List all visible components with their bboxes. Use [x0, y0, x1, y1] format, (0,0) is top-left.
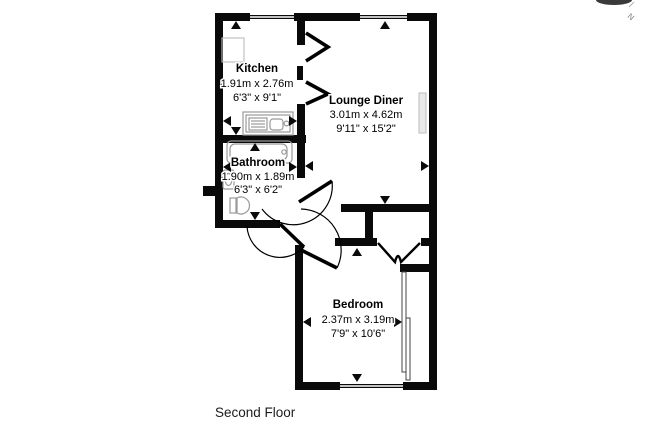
- bedroom-dim-metric: 2.37m x 3.19m: [322, 314, 395, 326]
- lounge-arrow-left: [305, 161, 313, 171]
- kitchen-dim-metric: 1.91m x 2.76m: [221, 78, 294, 90]
- kitchen-door-leaf-lower: [306, 82, 328, 104]
- lounge-label: Lounge Diner: [329, 95, 404, 107]
- lounge-dim-imperial: 9'11" x 15'2": [336, 123, 396, 135]
- lounge-arrow-down: [380, 196, 390, 204]
- bedroom-label: Bedroom: [333, 299, 383, 311]
- bathroom-label: Bathroom: [231, 157, 285, 169]
- kitchen-dim-imperial: 6'3" x 9'1": [233, 92, 281, 104]
- bedroom-arrow-down: [352, 374, 362, 382]
- bedroom-dim-imperial: 7'9" x 10'6": [331, 328, 385, 340]
- toilet: [230, 197, 249, 214]
- kitchen-arrow-left: [223, 116, 231, 126]
- floor-title: Second Floor: [215, 405, 296, 420]
- compass-needle: [629, 2, 634, 7]
- wall-kitchen-lounge-c: [297, 104, 305, 135]
- floorplan-drawing: Kitchen 1.91m x 2.76m 6'3" x 9'1" Lounge…: [0, 0, 650, 433]
- wall-wardrobe-top: [400, 264, 429, 272]
- wall-bifold-post: [421, 238, 429, 246]
- radiator: [419, 93, 426, 133]
- bifold-door: [378, 243, 420, 262]
- floorplan-page: Kitchen 1.91m x 2.76m 6'3" x 9'1" Lounge…: [0, 0, 650, 433]
- wall-kitchen-lounge-a: [297, 13, 305, 45]
- kitchen-label: Kitchen: [236, 63, 278, 75]
- kitchen-sink: [243, 112, 293, 135]
- bathroom-arrow-down: [250, 212, 260, 220]
- bathroom-dim-imperial: 6'3" x 6'2": [234, 184, 282, 196]
- wall-right: [429, 13, 437, 390]
- bedroom-arrow-right: [394, 317, 402, 327]
- wall-bathroom-right: [297, 143, 305, 178]
- compass-base: [596, 0, 632, 5]
- kitchen-door-leaf-upper: [306, 33, 328, 61]
- compass-north-icon: N: [626, 12, 636, 23]
- compass: N: [596, 0, 636, 22]
- wall-kitchen-lounge-b: [297, 66, 303, 80]
- wardrobe-sliding-doors: [402, 272, 410, 380]
- kitchen-opening-doors: [306, 33, 328, 104]
- kitchen-arrow-up: [231, 21, 241, 29]
- wall-landing-stub: [203, 186, 215, 196]
- wall-bedroom-left: [295, 245, 303, 390]
- kitchen-counter: [222, 38, 244, 62]
- bedroom-arrow-left: [303, 317, 311, 327]
- bedroom-arrow-up: [352, 248, 362, 256]
- lounge-arrow-right: [421, 161, 429, 171]
- kitchen-window: [250, 13, 294, 21]
- lounge-window: [360, 13, 407, 21]
- lounge-arrow-up: [380, 21, 390, 29]
- bathroom-dim-metric: 1.90m x 1.89m: [222, 171, 295, 183]
- wall-lounge-bottom: [341, 204, 437, 212]
- lounge-dim-metric: 3.01m x 4.62m: [330, 109, 403, 121]
- wall-hall-inner: [365, 212, 373, 242]
- kitchen-arrow-down: [231, 127, 241, 135]
- bedroom-window: [340, 382, 403, 390]
- dimension-arrows: [223, 21, 429, 382]
